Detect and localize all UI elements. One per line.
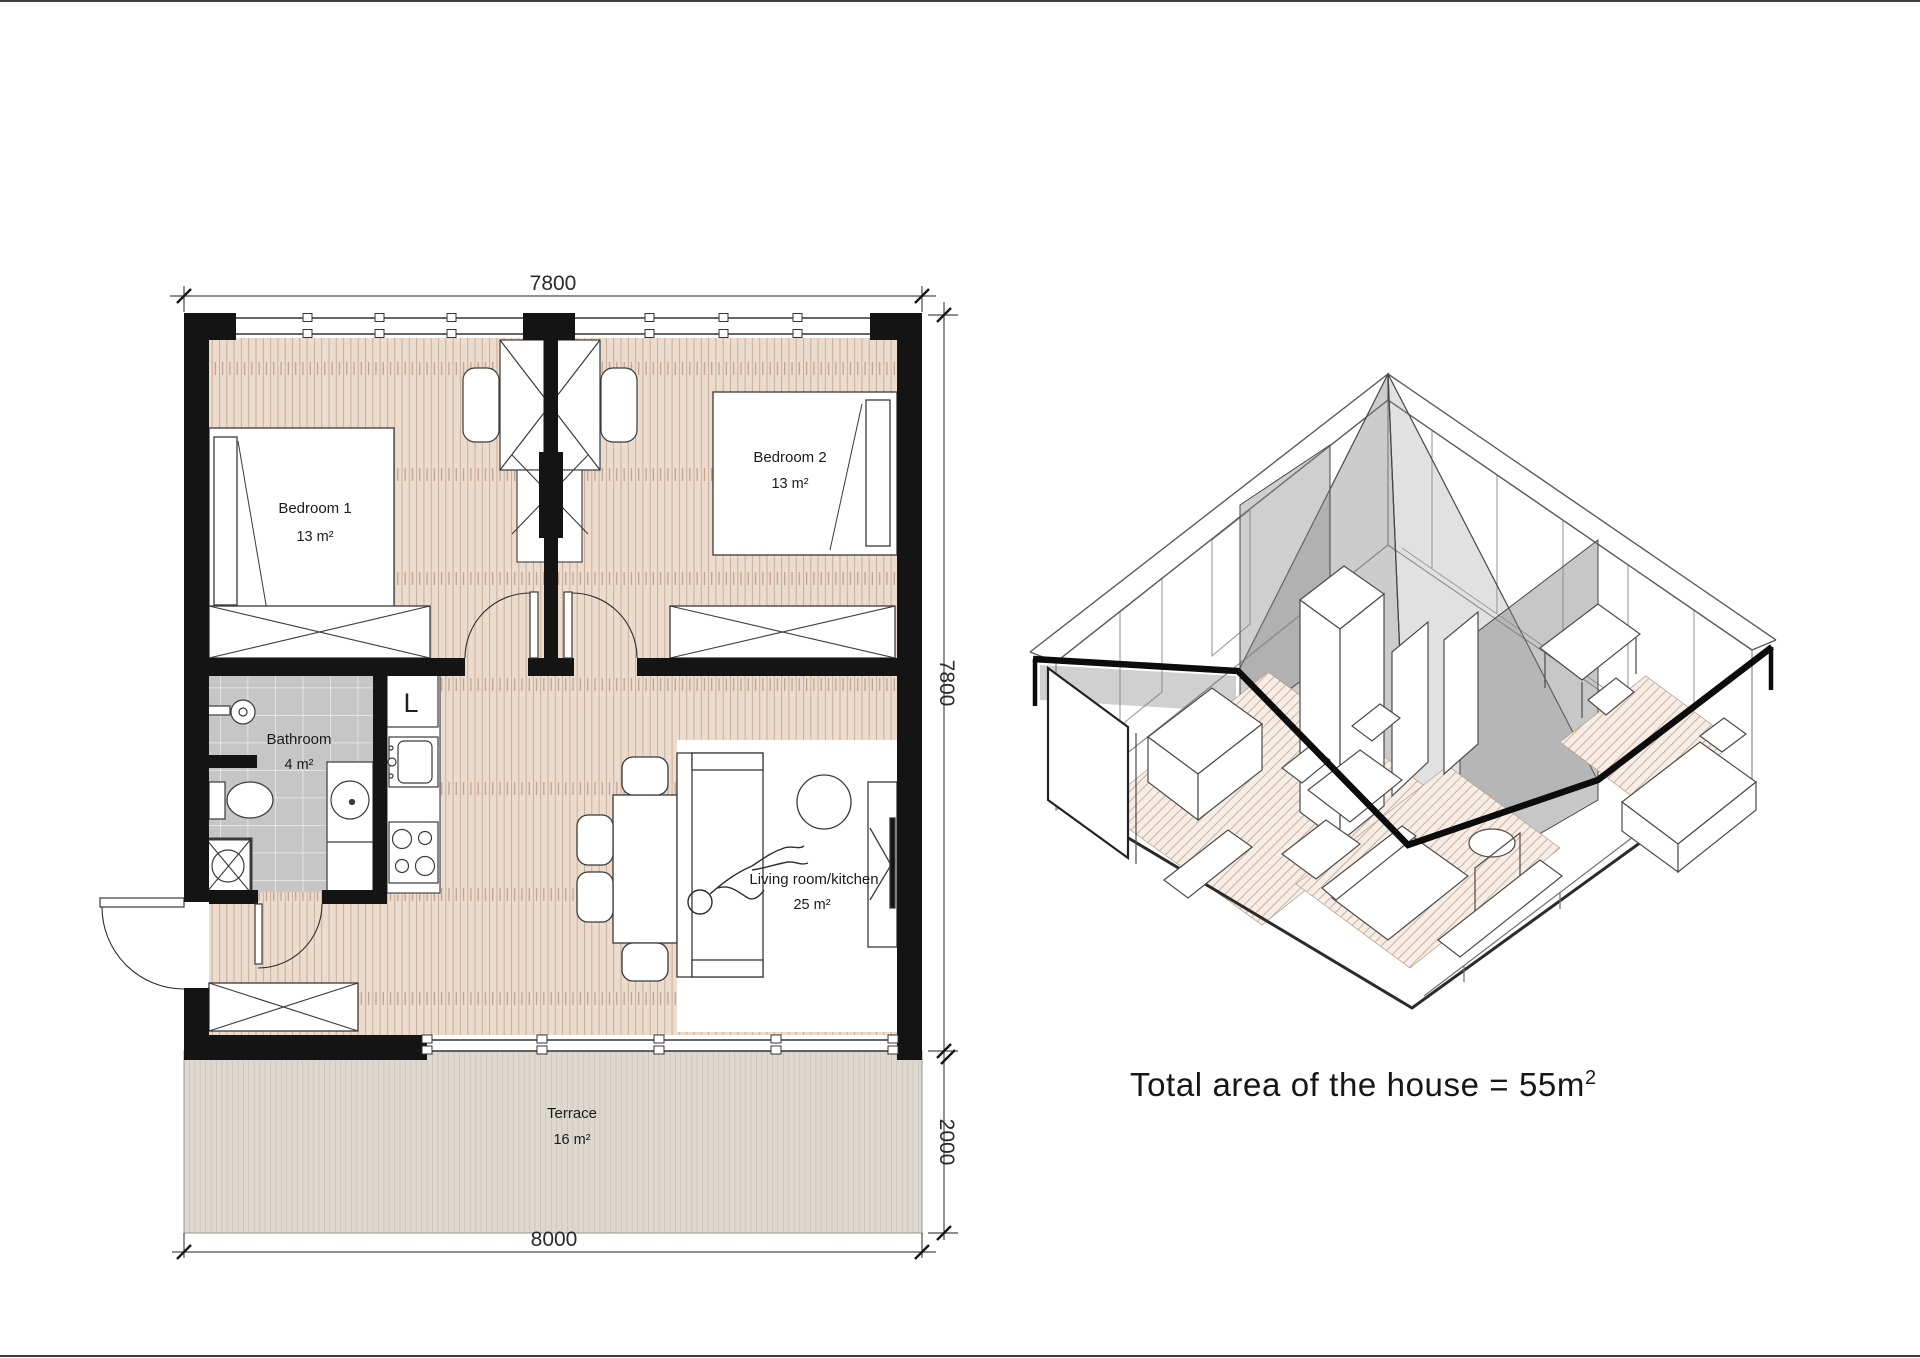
bedroom-2-area: 13 m² (771, 476, 808, 492)
bathroom-right-wall (373, 676, 387, 904)
desk-chair-left (463, 368, 499, 442)
coffee-table (797, 775, 851, 829)
bottom-glazing (422, 1035, 898, 1054)
sofa (677, 753, 763, 977)
desk-left (500, 340, 544, 470)
architectural-sheet: Bedroom 1 13 m² Bedroom 2 13 m² Bathroom… (0, 0, 1920, 1358)
bathroom-area: 4 m² (285, 757, 314, 773)
entrance-door (100, 898, 184, 989)
bedroom-1-area: 13 m² (296, 529, 333, 545)
desk-chair-right (601, 368, 637, 442)
stove (389, 822, 438, 883)
toilet (209, 782, 273, 819)
terrace-area: 16 m² (553, 1132, 590, 1148)
living-area: 25 m² (793, 897, 830, 913)
bedroom-1-wardrobe (209, 606, 430, 658)
dim-right-lower-text: 2000 (935, 1119, 958, 1166)
washing-machine (327, 762, 373, 892)
dim-top-text: 7800 (530, 272, 577, 295)
center-pillar (523, 313, 575, 340)
dining-chair (622, 757, 668, 795)
floor-plan: Bedroom 1 13 m² Bedroom 2 13 m² Bathroom… (100, 272, 958, 1259)
total-area-superscript: 2 (1585, 1067, 1597, 1089)
dim-right-upper-text: 7800 (935, 660, 958, 707)
tv-bench (868, 782, 897, 947)
bathroom-label: Bathroom (266, 731, 331, 748)
bathroom-partition (209, 755, 257, 768)
total-area-text: Total area of the house = 55m (1130, 1066, 1585, 1103)
dim-bottom-text: 8000 (531, 1228, 578, 1251)
bedroom-2-wardrobe (670, 606, 895, 658)
bedroom-2-label: Bedroom 2 (753, 449, 826, 466)
isometric-view (1030, 374, 1776, 1008)
fridge-label: L (403, 688, 418, 718)
desk-right (556, 340, 600, 470)
total-area-caption: Total area of the house = 55m2 (1130, 1066, 1597, 1104)
dim-right-lower (928, 1226, 958, 1240)
dining-table (613, 795, 677, 943)
bedroom-2-pillow (866, 400, 890, 546)
living-label: Living room/kitchen (749, 871, 878, 888)
shower (206, 839, 251, 893)
dim-right-upper (928, 302, 958, 1240)
bedroom-1-pillow (214, 437, 237, 605)
drawing-canvas: Bedroom 1 13 m² Bedroom 2 13 m² Bathroom… (0, 0, 1920, 1358)
kitchen-sink (388, 737, 438, 787)
dining-chair (577, 872, 613, 922)
hall-wardrobe (209, 983, 358, 1031)
dining-chair (622, 943, 668, 981)
wall-pocket (539, 452, 563, 538)
dining-chair (577, 815, 613, 865)
bedroom-1-label: Bedroom 1 (278, 500, 351, 517)
terrace-label: Terrace (547, 1105, 597, 1122)
